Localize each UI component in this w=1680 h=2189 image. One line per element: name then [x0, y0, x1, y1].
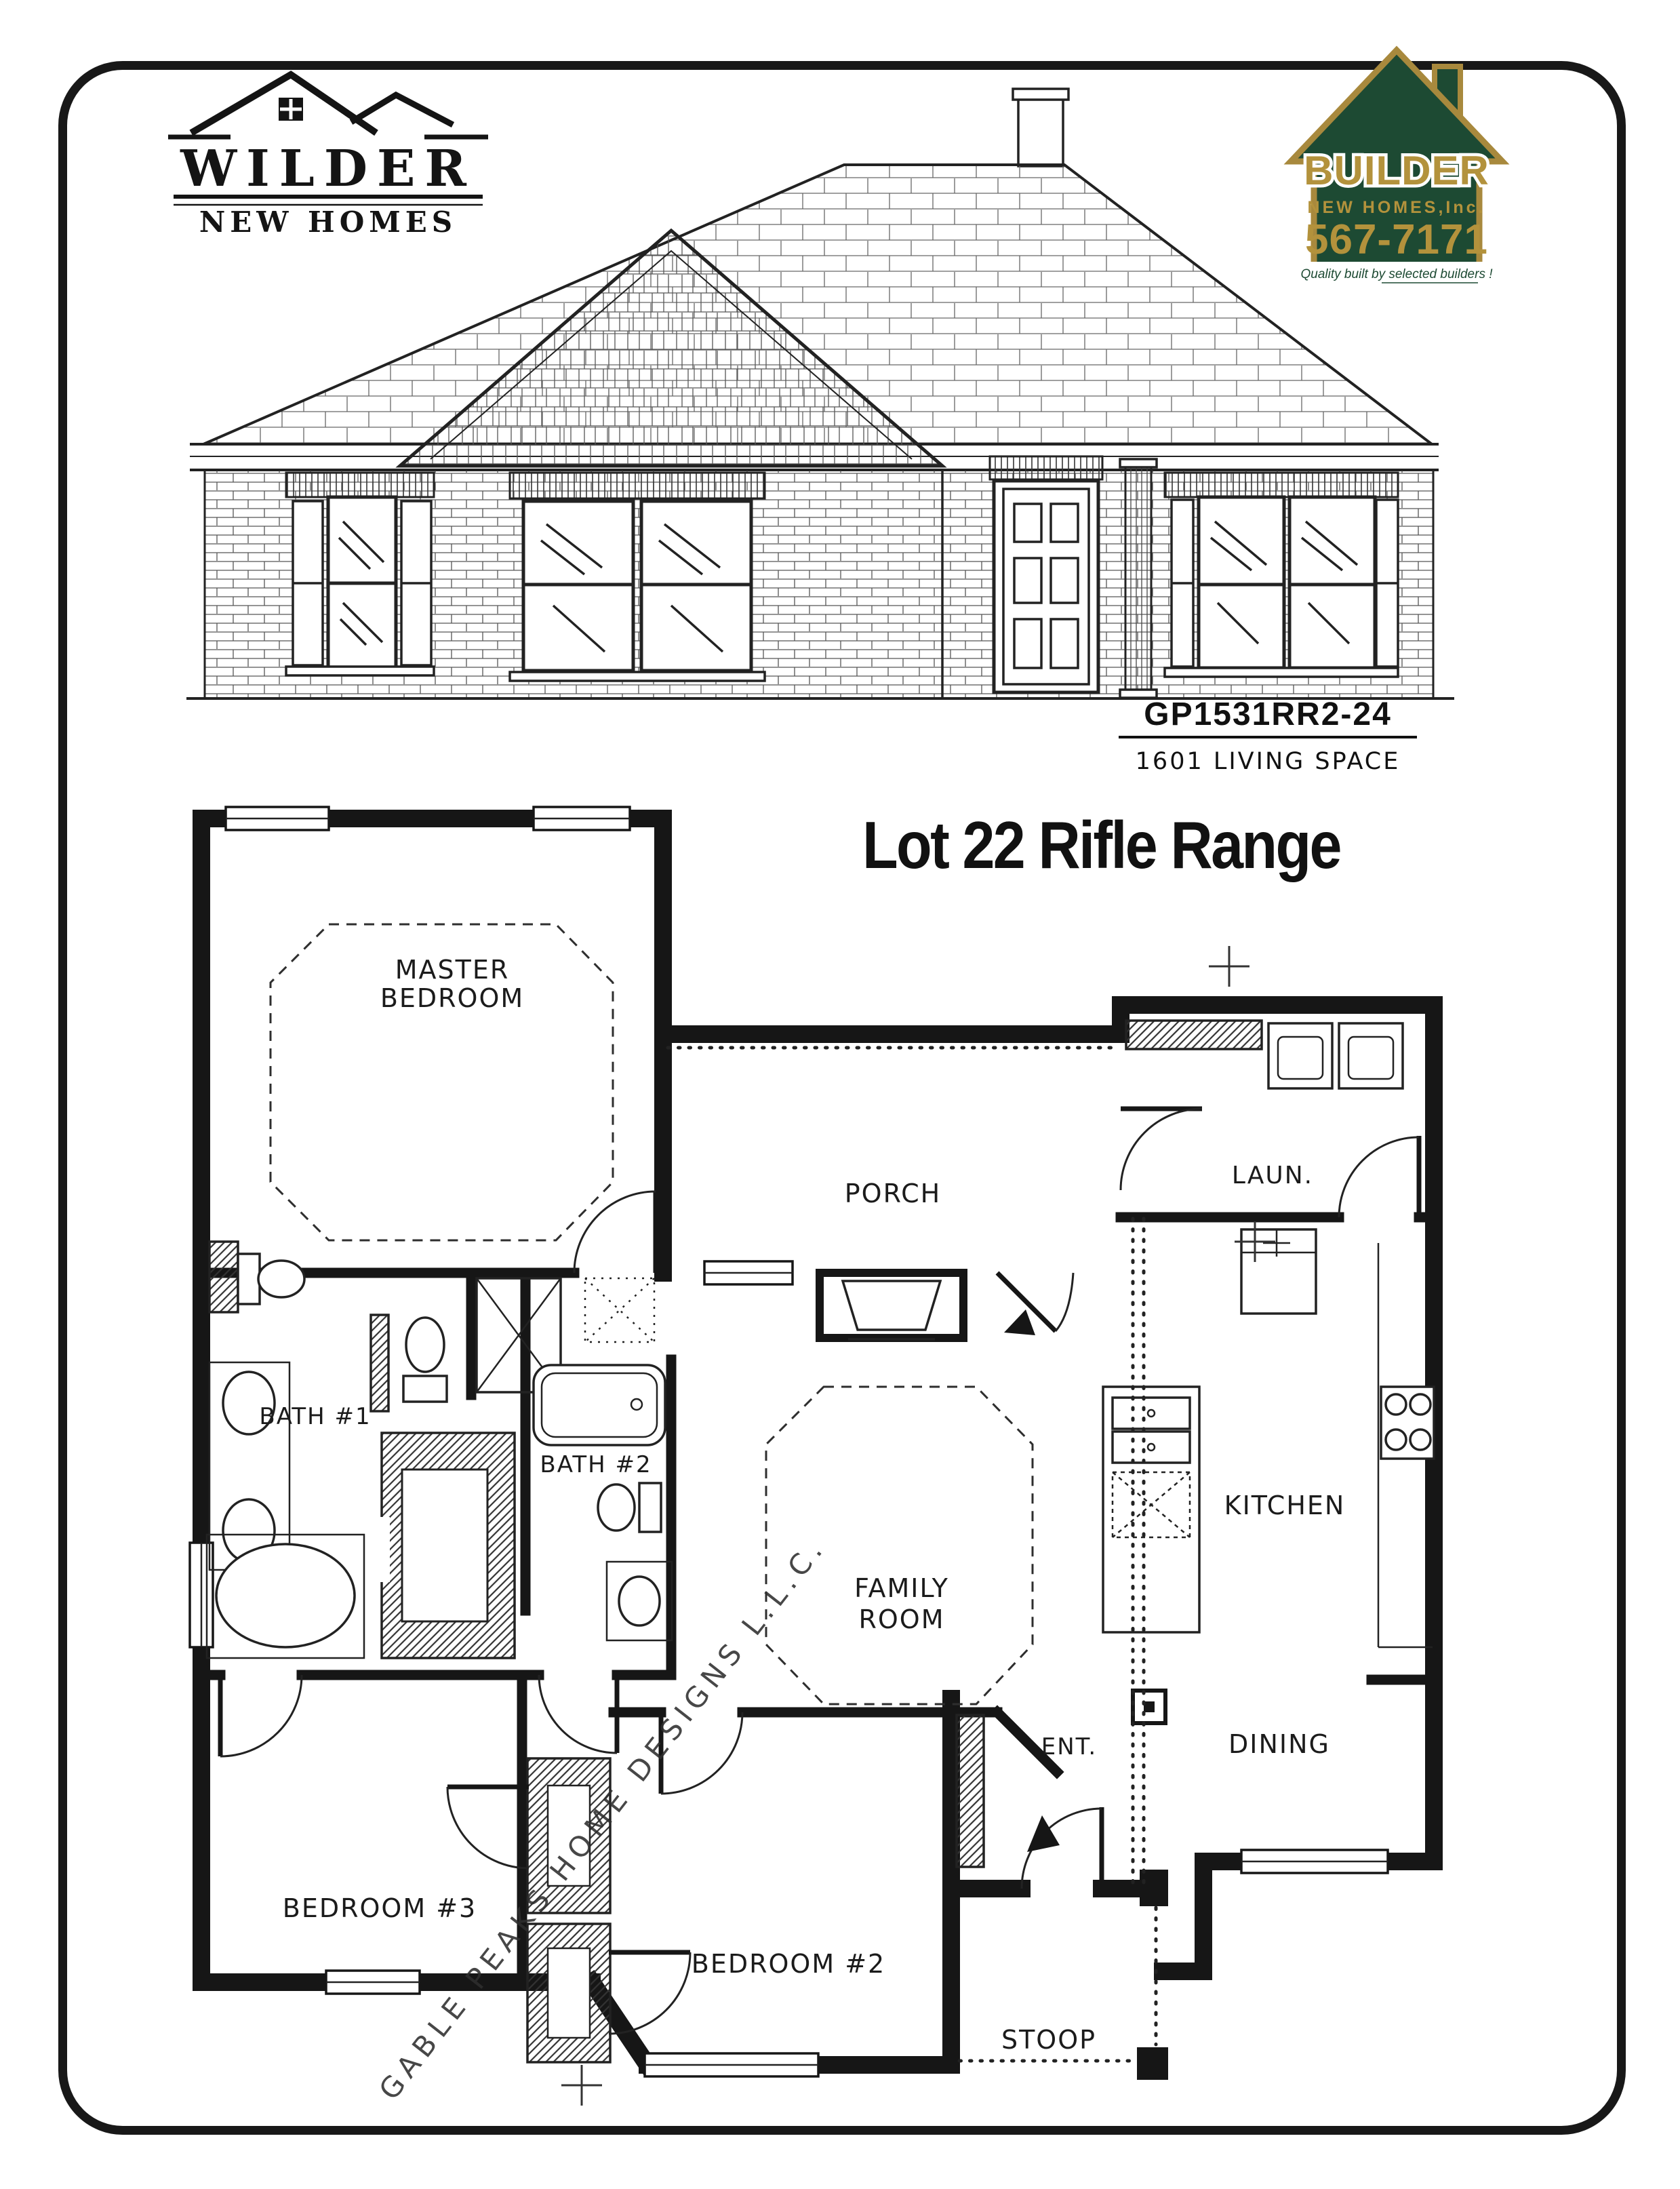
label-bed3: BEDROOM #3	[283, 1893, 477, 1923]
label-stoop: STOOP	[1001, 2025, 1096, 2055]
label-master-1: MASTER	[395, 955, 510, 985]
label-bed2: BEDROOM #2	[692, 1949, 885, 1979]
label-kitchen: KITCHEN	[1224, 1491, 1346, 1520]
left-window	[286, 473, 434, 675]
label-entry: ENT.	[1041, 1733, 1097, 1760]
plan-code-block: GP1531RR2-24 1601 LIVING SPACE	[1105, 696, 1431, 775]
fireplace	[820, 1273, 963, 1339]
front-door	[990, 456, 1102, 692]
label-laundry: LAUN.	[1232, 1162, 1313, 1189]
floor-plan: MASTER BEDROOM PORCH LAUN. BATH #1 BATH …	[186, 804, 1475, 2126]
label-family-2: ROOM	[858, 1604, 944, 1634]
label-master-2: BEDROOM	[380, 983, 524, 1013]
flyer-page: WILDER NEW HOMES BUILDER NEW HOMES,Inc. …	[0, 0, 1680, 2189]
living-space-text: 1601 LIVING SPACE	[1105, 748, 1431, 775]
label-porch: PORCH	[845, 1179, 941, 1208]
label-dining: DINING	[1228, 1729, 1330, 1759]
label-bath2: BATH #2	[540, 1451, 652, 1478]
chimney	[1013, 89, 1068, 166]
right-window	[1165, 473, 1398, 677]
plan-model-code: GP1531RR2-24	[1105, 696, 1431, 733]
door-pilaster	[1120, 459, 1157, 698]
label-family-1: FAMILY	[854, 1573, 949, 1603]
label-bath1: BATH #1	[259, 1403, 371, 1430]
laundry-appliances	[1268, 1023, 1403, 1088]
plan-code-underline	[1119, 736, 1417, 738]
elevation-drawing	[163, 85, 1485, 705]
kitchen-fixtures	[1103, 1229, 1434, 1723]
